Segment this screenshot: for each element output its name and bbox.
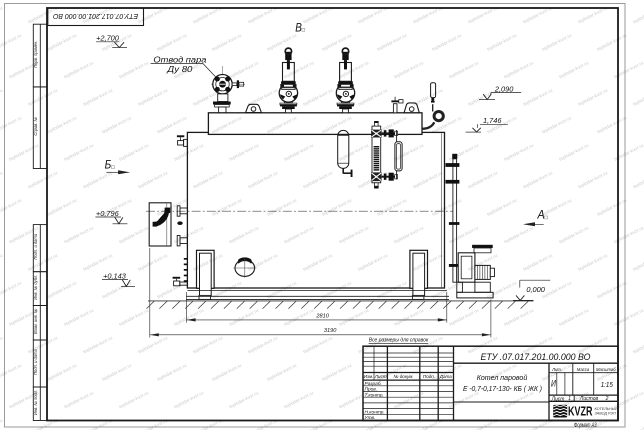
svg-text:ЗАВОД РЭП: ЗАВОД РЭП	[595, 412, 616, 416]
svg-text:№ докум.: № докум.	[393, 374, 413, 379]
svg-text:+0,143: +0,143	[103, 271, 127, 280]
svg-text:1:15: 1:15	[601, 380, 614, 389]
svg-text:Б: Б	[105, 158, 112, 171]
svg-text:Подп. и дата: Подп. и дата	[33, 233, 38, 259]
svg-text:Справ. №: Справ. №	[33, 116, 38, 135]
svg-text:Разраб.: Разраб.	[365, 381, 382, 387]
svg-text:И: И	[551, 379, 556, 389]
svg-text:0,000: 0,000	[526, 285, 545, 294]
svg-text:Масса: Масса	[577, 367, 590, 372]
svg-text:3190: 3190	[324, 328, 337, 334]
svg-text:KVZR: KVZR	[568, 405, 593, 419]
svg-text:Лист: Лист	[551, 396, 565, 402]
svg-text:Утв.: Утв.	[365, 415, 376, 421]
svg-text:Инв. № дубл.: Инв. № дубл.	[33, 275, 38, 300]
svg-text:В: В	[295, 21, 302, 34]
svg-text:ЕТУ .07.017.201.00.000 ВО: ЕТУ .07.017.201.00.000 ВО	[481, 352, 591, 362]
svg-text:Изм.: Изм.	[364, 374, 374, 379]
svg-text:2: 2	[605, 396, 609, 402]
svg-text:2810: 2810	[315, 313, 329, 319]
svg-text:Н.контр.: Н.контр.	[365, 409, 385, 415]
svg-text:Подп. и дата: Подп. и дата	[33, 349, 38, 375]
